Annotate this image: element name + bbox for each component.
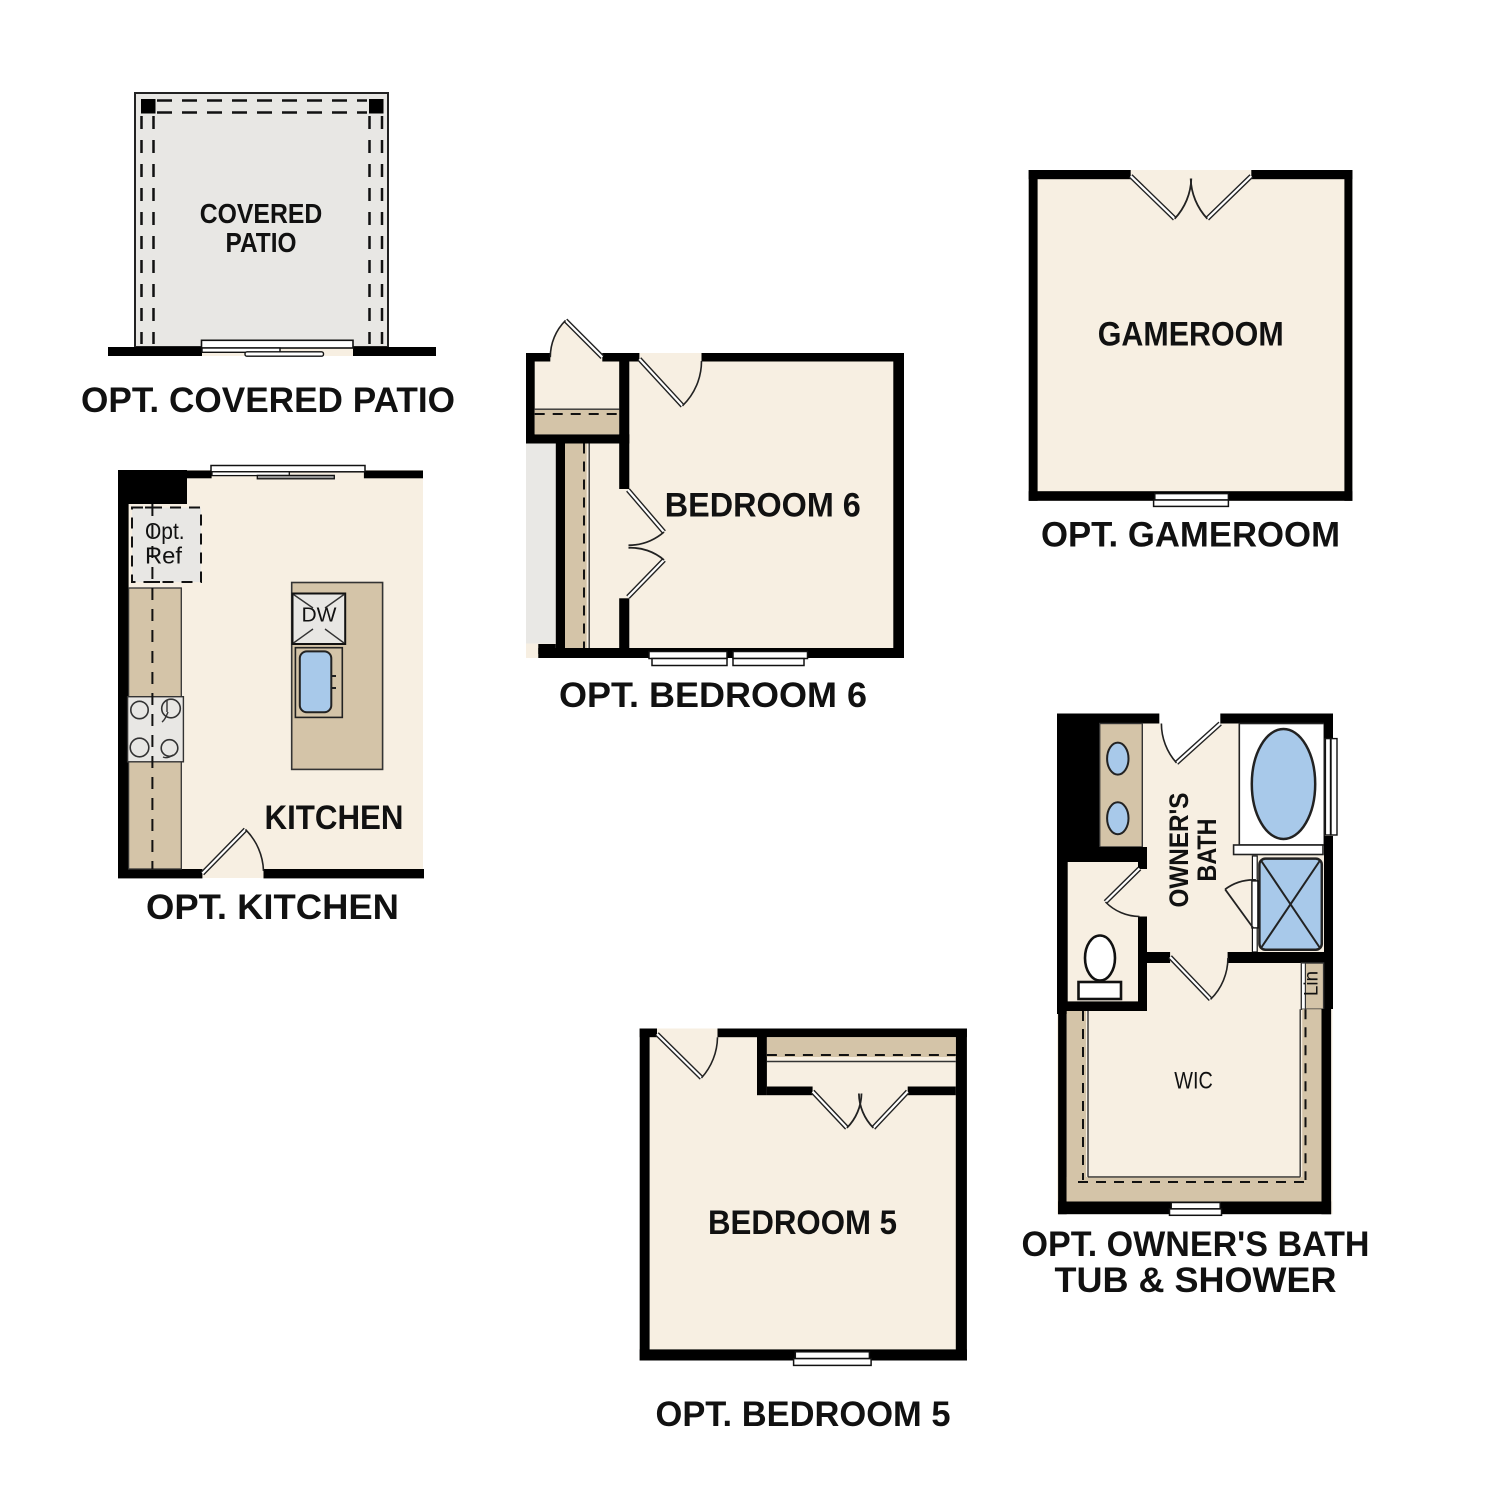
svg-text:KITCHEN: KITCHEN — [265, 799, 404, 837]
svg-text:WIC: WIC — [1174, 1068, 1213, 1095]
svg-text:OPT. KITCHEN: OPT. KITCHEN — [146, 888, 399, 927]
svg-text:Lin: Lin — [1302, 971, 1323, 996]
svg-text:TUB & SHOWER: TUB & SHOWER — [1055, 1261, 1337, 1300]
svg-text:Ref: Ref — [145, 543, 183, 569]
svg-text:BATH: BATH — [1192, 819, 1222, 882]
svg-text:OWNER'S: OWNER'S — [1164, 793, 1194, 908]
svg-text:DW: DW — [302, 605, 337, 627]
svg-text:Opt.: Opt. — [145, 518, 185, 544]
svg-text:BEDROOM 6: BEDROOM 6 — [665, 487, 861, 525]
svg-text:COVERED: COVERED — [200, 198, 323, 229]
svg-text:OPT. GAMEROOM: OPT. GAMEROOM — [1041, 516, 1340, 555]
svg-text:OPT. BEDROOM 6: OPT. BEDROOM 6 — [559, 676, 867, 715]
svg-text:PATIO: PATIO — [226, 227, 297, 258]
svg-text:GAMEROOM: GAMEROOM — [1098, 316, 1284, 354]
svg-text:OPT. OWNER'S BATH: OPT. OWNER'S BATH — [1022, 1225, 1370, 1264]
svg-text:OPT. BEDROOM 5: OPT. BEDROOM 5 — [656, 1395, 951, 1434]
svg-text:BEDROOM 5: BEDROOM 5 — [708, 1204, 897, 1242]
svg-text:OPT. COVERED PATIO: OPT. COVERED PATIO — [81, 381, 455, 420]
